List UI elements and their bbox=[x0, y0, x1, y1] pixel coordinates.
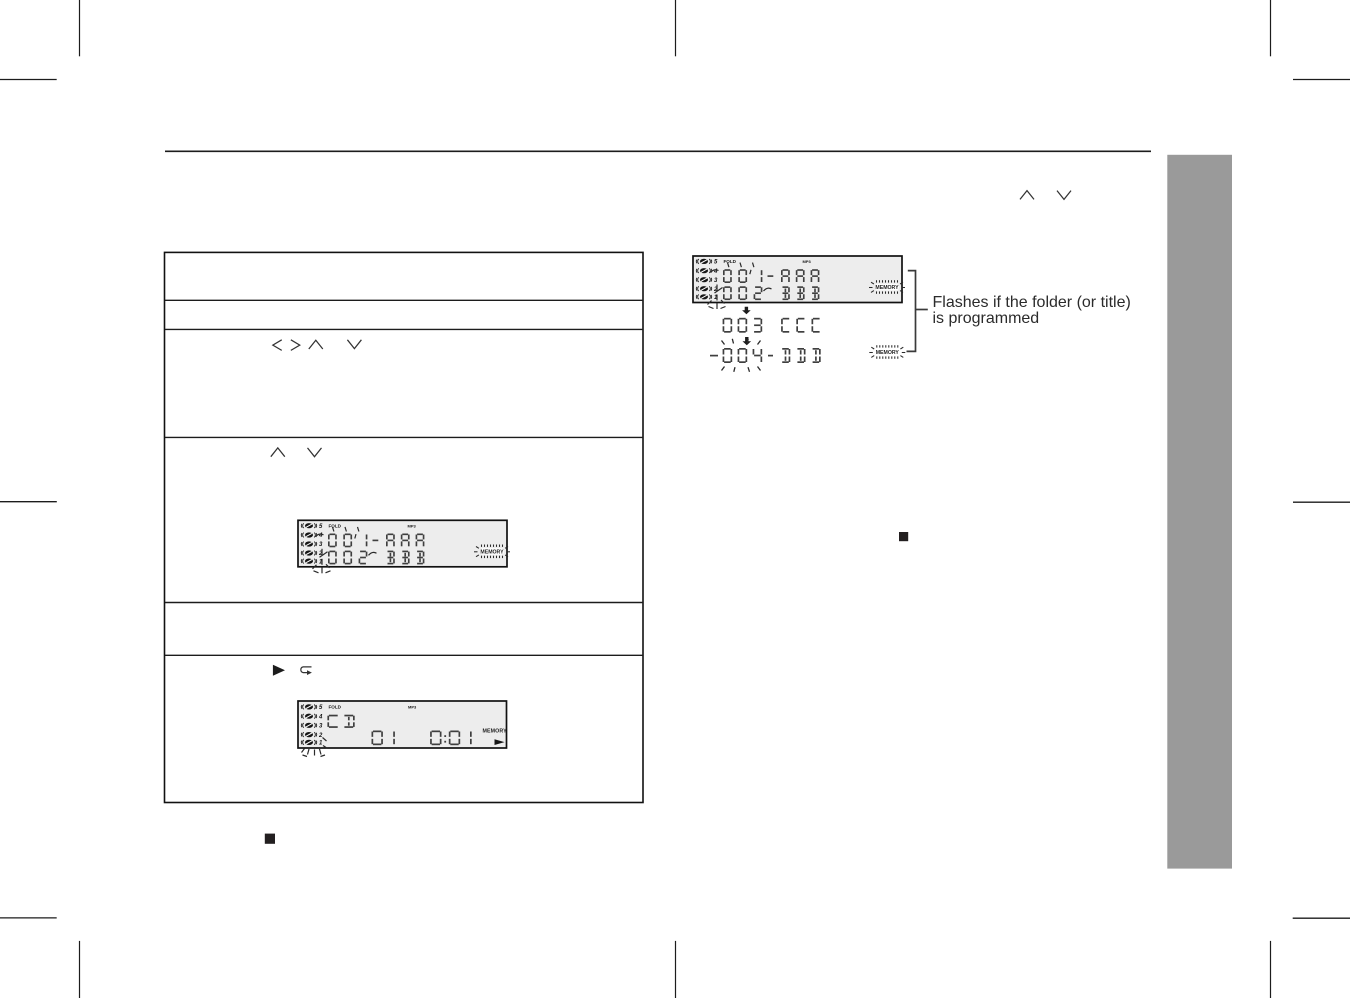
svg-text:4: 4 bbox=[318, 714, 323, 720]
svg-text:MP3: MP3 bbox=[408, 523, 417, 528]
svg-text:MEMORY: MEMORY bbox=[483, 728, 508, 734]
svg-text:MEMORY: MEMORY bbox=[480, 549, 504, 555]
svg-text:FOLD: FOLD bbox=[724, 259, 737, 264]
svg-text:MEMORY: MEMORY bbox=[875, 285, 899, 291]
svg-text:FOLD: FOLD bbox=[329, 705, 342, 710]
svg-text:FOLD: FOLD bbox=[329, 524, 342, 529]
svg-text:MEMORY: MEMORY bbox=[876, 350, 900, 356]
svg-text:MP3: MP3 bbox=[803, 259, 812, 264]
svg-text:MP3: MP3 bbox=[408, 704, 417, 709]
